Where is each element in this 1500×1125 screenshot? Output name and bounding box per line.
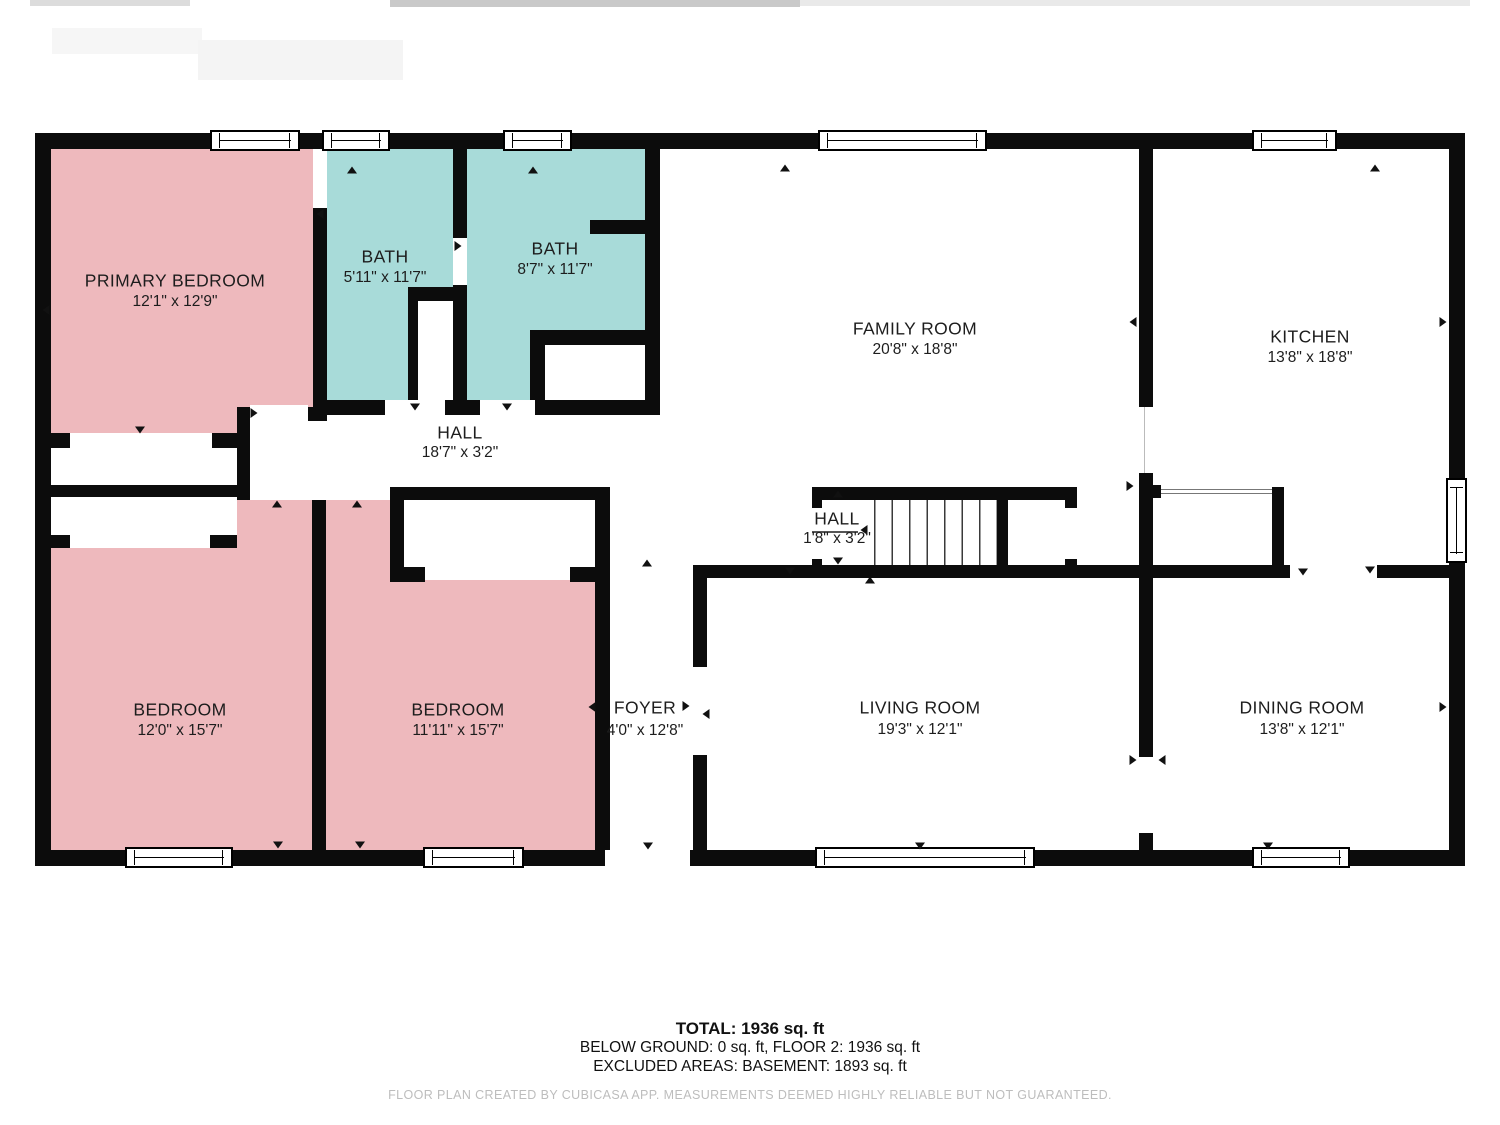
door-arrow-icon bbox=[1130, 755, 1137, 765]
footer-disclaimer: FLOOR PLAN CREATED BY CUBICASA APP. MEAS… bbox=[388, 1088, 1112, 1102]
door-arrow-icon bbox=[865, 577, 875, 584]
window bbox=[815, 847, 1035, 868]
door-arrow-icon bbox=[502, 404, 512, 411]
wall bbox=[812, 500, 822, 508]
window bbox=[818, 130, 987, 151]
wall bbox=[408, 287, 418, 408]
wall bbox=[390, 487, 610, 500]
door-arrow-icon bbox=[642, 560, 652, 567]
closet-door-line bbox=[1161, 493, 1272, 494]
room-dims-bath-2: 8'7" x 11'7" bbox=[517, 261, 592, 279]
door-arrow-icon bbox=[347, 167, 357, 174]
closet-door-line bbox=[1161, 489, 1272, 490]
door-arrow-icon bbox=[703, 709, 710, 719]
wall bbox=[212, 433, 237, 448]
top-artifact bbox=[390, 0, 800, 7]
door-arrow-icon bbox=[833, 558, 843, 565]
room-dims-bedroom-2: 12'0" x 15'7" bbox=[137, 722, 222, 740]
wall bbox=[453, 149, 467, 238]
room-dims-hall-2: 1'8" x 3'2" bbox=[803, 530, 871, 548]
wall bbox=[1377, 565, 1465, 578]
window bbox=[503, 130, 572, 151]
wall bbox=[35, 535, 70, 548]
door-arrow-icon bbox=[1298, 569, 1308, 576]
room-dims-bath-1: 5'11" x 11'7" bbox=[344, 269, 427, 287]
window bbox=[322, 130, 390, 151]
wall bbox=[35, 485, 250, 497]
door-arrow-icon bbox=[1440, 317, 1447, 327]
door-arrow-icon bbox=[1130, 317, 1137, 327]
wall bbox=[530, 330, 655, 345]
door-arrow-icon bbox=[352, 501, 362, 508]
staircase bbox=[858, 500, 997, 565]
wall bbox=[312, 500, 326, 852]
wall bbox=[313, 208, 327, 408]
door-arrow-icon bbox=[915, 843, 925, 850]
door-arrow-icon bbox=[410, 404, 420, 411]
wall bbox=[535, 400, 660, 415]
wall bbox=[210, 535, 237, 548]
room-area-bedroom-3 bbox=[326, 500, 390, 858]
wall bbox=[1139, 833, 1153, 852]
wall bbox=[35, 133, 51, 866]
top-artifact bbox=[52, 28, 202, 54]
wall bbox=[408, 287, 453, 301]
door-arrow-icon bbox=[272, 501, 282, 508]
door-arrow-icon bbox=[43, 305, 50, 315]
door-opening bbox=[250, 405, 308, 421]
wall bbox=[35, 850, 1465, 866]
door-arrow-icon bbox=[455, 241, 462, 251]
wall bbox=[1139, 565, 1290, 578]
floor-plan: PRIMARY BEDROOM 12'1" x 12'9" BATH 5'11"… bbox=[0, 0, 1500, 1125]
window bbox=[125, 847, 233, 868]
wall bbox=[308, 407, 327, 421]
door-arrow-icon bbox=[273, 842, 283, 849]
door-arrow-icon bbox=[683, 701, 690, 711]
room-label-hall-2: HALL bbox=[814, 509, 859, 530]
wall bbox=[595, 500, 610, 852]
door-arrow-icon bbox=[528, 167, 538, 174]
wall bbox=[693, 565, 1139, 578]
door-arrow-icon bbox=[135, 427, 145, 434]
wall bbox=[693, 755, 707, 852]
window bbox=[1252, 847, 1350, 868]
room-dims-kitchen: 13'8" x 18'8" bbox=[1267, 349, 1352, 367]
room-dims-foyer: 4'0" x 12'8" bbox=[607, 722, 683, 740]
wall bbox=[35, 433, 70, 448]
door-swing-line bbox=[1144, 407, 1145, 473]
wall bbox=[693, 565, 707, 667]
room-dims-bedroom-3: 11'11" x 15'7" bbox=[412, 722, 503, 740]
wall bbox=[812, 487, 1077, 500]
wall bbox=[445, 400, 480, 415]
room-label-kitchen: KITCHEN bbox=[1270, 327, 1350, 348]
wall bbox=[590, 220, 660, 234]
door-arrow-icon bbox=[1263, 843, 1273, 850]
window bbox=[1252, 130, 1337, 151]
room-dims-living-room: 19'3" x 12'1" bbox=[877, 721, 962, 739]
wall bbox=[645, 149, 660, 415]
wall bbox=[1065, 500, 1077, 508]
wall bbox=[570, 567, 595, 582]
door-arrow-icon bbox=[643, 843, 653, 850]
door-arrow-icon bbox=[1365, 567, 1375, 574]
room-label-foyer: FOYER bbox=[614, 698, 676, 719]
summary-below-ground: BELOW GROUND: 0 sq. ft, FLOOR 2: 1936 sq… bbox=[580, 1039, 920, 1057]
door-arrow-icon bbox=[1440, 702, 1447, 712]
closet bbox=[545, 345, 652, 400]
room-area-bedroom-2 bbox=[237, 500, 319, 858]
door-arrow-icon bbox=[1127, 481, 1134, 491]
window bbox=[423, 847, 524, 868]
door-arrow-icon bbox=[833, 491, 843, 498]
door-opening bbox=[605, 850, 690, 866]
door-arrow-icon bbox=[1370, 165, 1380, 172]
wall bbox=[1139, 149, 1153, 407]
door-arrow-icon bbox=[251, 408, 258, 418]
door-opening bbox=[313, 149, 327, 208]
room-dims-family-room: 20'8" x 18'8" bbox=[872, 341, 957, 359]
window bbox=[1446, 478, 1467, 563]
room-label-living-room: LIVING ROOM bbox=[859, 698, 980, 719]
room-dims-dining-room: 13'8" x 12'1" bbox=[1259, 721, 1344, 739]
window bbox=[210, 130, 300, 151]
room-label-bath-2: BATH bbox=[532, 239, 579, 260]
wall bbox=[453, 285, 467, 408]
wall bbox=[1139, 473, 1153, 757]
door-arrow-icon bbox=[780, 165, 790, 172]
wall bbox=[390, 567, 425, 582]
room-label-family-room: FAMILY ROOM bbox=[853, 319, 977, 340]
room-label-hall: HALL bbox=[437, 423, 482, 444]
room-label-primary-bedroom: PRIMARY BEDROOM bbox=[85, 271, 265, 292]
top-artifact bbox=[800, 0, 1470, 6]
room-dims-hall: 18'7" x 3'2" bbox=[422, 444, 498, 462]
door-arrow-icon bbox=[317, 209, 324, 219]
room-label-bedroom-2: BEDROOM bbox=[133, 700, 226, 721]
top-artifact bbox=[198, 40, 403, 80]
summary-total: TOTAL: 1936 sq. ft bbox=[676, 1019, 825, 1039]
closet bbox=[416, 301, 453, 400]
top-artifact bbox=[30, 0, 190, 6]
wall bbox=[327, 400, 385, 415]
door-arrow-icon bbox=[1159, 755, 1166, 765]
room-label-bath-1: BATH bbox=[362, 247, 409, 268]
door-arrow-icon bbox=[785, 568, 795, 575]
door-jamb bbox=[1153, 485, 1161, 498]
room-label-dining-room: DINING ROOM bbox=[1240, 698, 1365, 719]
room-dims-primary-bedroom: 12'1" x 12'9" bbox=[132, 293, 217, 311]
door-arrow-icon bbox=[355, 842, 365, 849]
door-arrow-icon bbox=[589, 702, 596, 712]
summary-excluded: EXCLUDED AREAS: BASEMENT: 1893 sq. ft bbox=[593, 1058, 907, 1076]
room-label-bedroom-3: BEDROOM bbox=[411, 700, 504, 721]
